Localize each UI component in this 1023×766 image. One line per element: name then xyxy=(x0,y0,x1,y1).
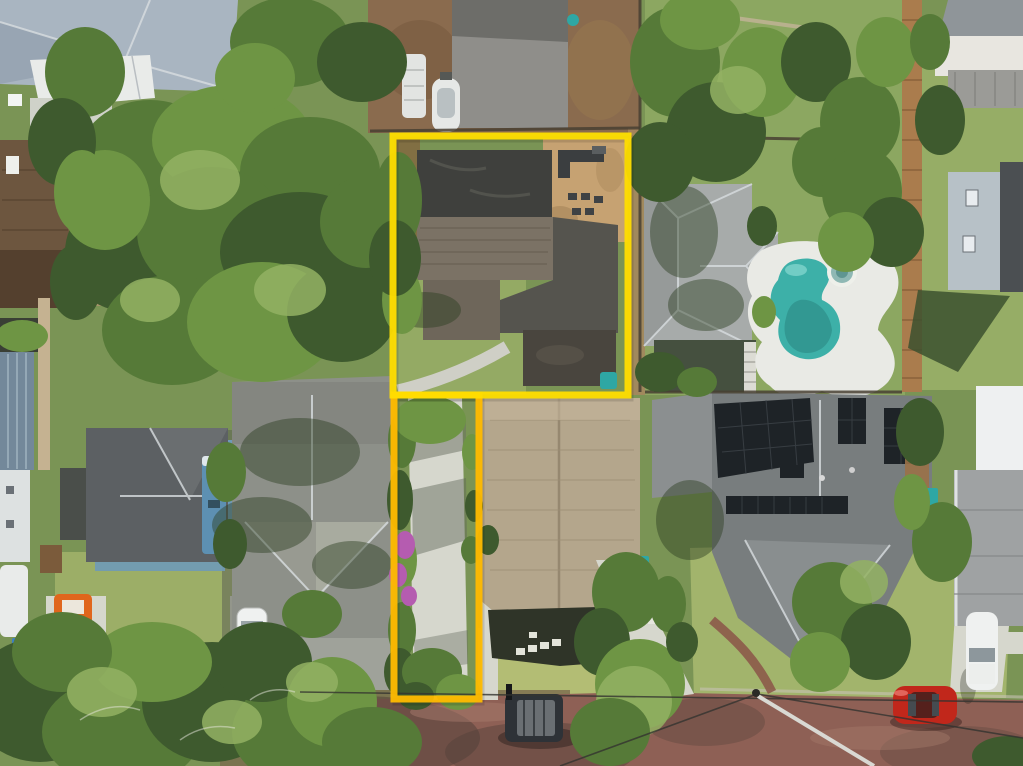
flat-roof xyxy=(417,150,552,217)
aerial-photo-stage xyxy=(0,0,1023,766)
teal-pool-toy xyxy=(600,372,617,389)
white-steps xyxy=(744,342,756,396)
boat-on-trailer xyxy=(432,72,460,132)
shingle-roof xyxy=(417,217,553,280)
utility-pole xyxy=(752,689,760,697)
top-shed xyxy=(452,0,579,128)
subject-property xyxy=(389,137,628,394)
aerial-photo xyxy=(0,0,1023,766)
red-car xyxy=(890,686,962,731)
